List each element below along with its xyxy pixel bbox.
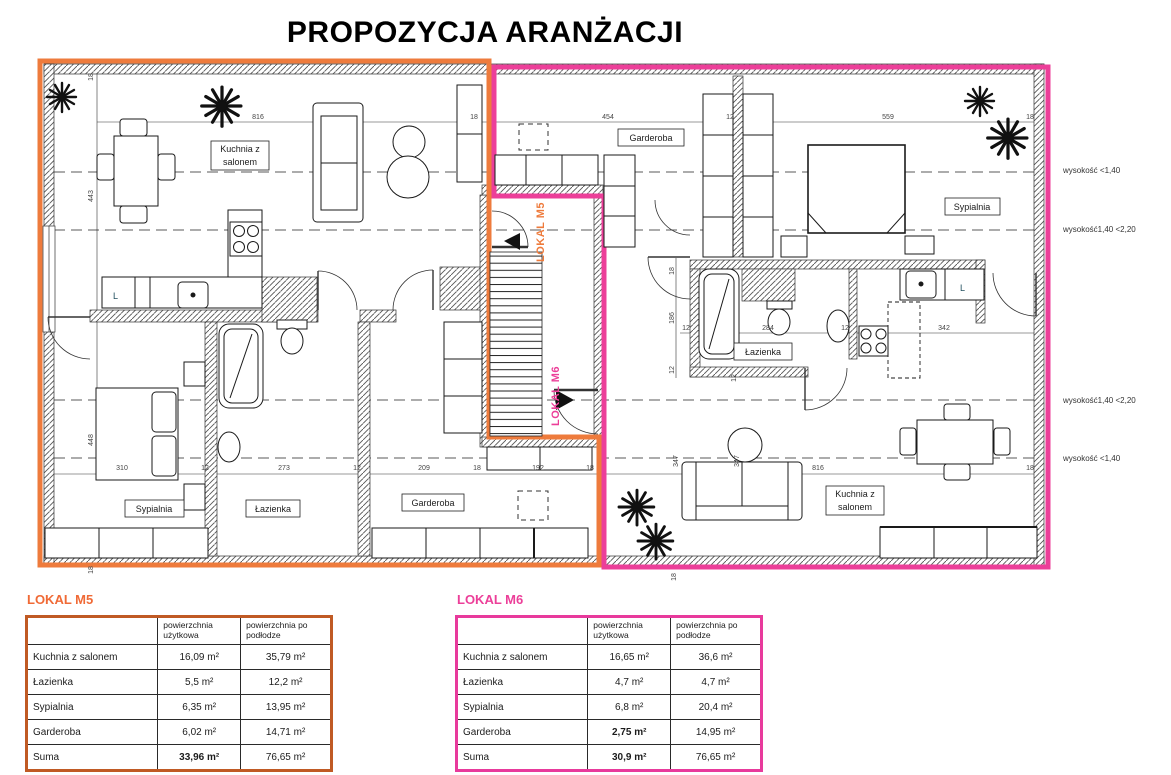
dim-text: 18 (586, 465, 594, 472)
label-kuchnia-m5: Kuchnia z salonem (211, 141, 269, 170)
header-empty (27, 617, 158, 645)
row-area-b: 14,71 m² (241, 720, 332, 745)
table-row: Garderoba 2,75 m² 14,95 m² (457, 720, 762, 745)
table-row: Sypialnia 6,35 m² 13,95 m² (27, 695, 332, 720)
row-name: Łazienka (27, 670, 158, 695)
dining-table-m5 (97, 119, 175, 223)
table-header-row: powierzchnia użytkowa powierzchnia po po… (27, 617, 332, 645)
dim-text: 12 (201, 465, 209, 472)
table-row: Łazienka 5,5 m² 12,2 m² (27, 670, 332, 695)
row-name: Garderoba (27, 720, 158, 745)
row-name: Garderoba (457, 720, 588, 745)
row-area-b: 4,7 m² (671, 670, 762, 695)
dim-text: 347 (673, 455, 680, 467)
dim-text: 347 (734, 455, 741, 467)
worktop-dashed-m6 (888, 302, 920, 378)
dim-text: 18 (470, 114, 478, 121)
sofa-m6 (682, 462, 802, 520)
dim-text: 12 (726, 114, 734, 121)
row-area-b: 36,6 m² (671, 645, 762, 670)
row-area-b: 13,95 m² (241, 695, 332, 720)
wardrobe-m6-b (743, 94, 773, 257)
cabinet-m6-top (495, 155, 598, 185)
height-label: wysokość1,40 <2,20 (1062, 396, 1136, 405)
low-cabinet-m5-left (45, 528, 208, 558)
area-table-m6: powierzchnia użytkowa powierzchnia po po… (455, 615, 763, 772)
stove-m6 (859, 326, 888, 356)
kitchen-counter-m6 (900, 269, 984, 300)
dim-text: 342 (938, 325, 950, 332)
header-col-b: powierzchnia po podłodze (671, 617, 762, 645)
nightstand (184, 484, 205, 510)
low-cabinet-m6 (880, 527, 1037, 558)
label-text: Kuchnia z (220, 144, 260, 154)
lokal-m6-label: LOKAL M6 (550, 366, 562, 426)
fridge-label-m6: L (960, 283, 965, 293)
label-lazienka-m5: Łazienka (246, 500, 300, 517)
dim-text: 18 (88, 73, 95, 81)
table-header-row: powierzchnia użytkowa powierzchnia po po… (457, 617, 762, 645)
dim-text: 443 (88, 190, 95, 202)
dim-text: 12 (669, 366, 676, 374)
row-name: Suma (27, 745, 158, 771)
nightstand (905, 236, 934, 254)
table-block-m6: LOKAL M6 powierzchnia użytkowa powierzch… (455, 592, 763, 772)
wardrobe-column-m5 (444, 322, 482, 433)
floor-plan: Kuchnia z salonem Garderoba Sypialnia Ła… (0, 0, 1171, 585)
table-row: Kuchnia z salonem 16,65 m² 36,6 m² (457, 645, 762, 670)
dim-text: 273 (278, 465, 290, 472)
label-text: Kuchnia z (835, 489, 875, 499)
label-text: Garderoba (629, 133, 672, 143)
label-garderoba-m5: Garderoba (402, 494, 464, 511)
dresser-m6 (604, 155, 635, 247)
stove-m5 (228, 210, 262, 277)
dim-text: 18 (88, 566, 95, 574)
table-row: Sypialnia 6,8 m² 20,4 m² (457, 695, 762, 720)
table-block-m5: LOKAL M5 powierzchnia użytkowa powierzch… (25, 592, 333, 772)
tree-icon (202, 87, 241, 126)
table-title-m6: LOKAL M6 (457, 592, 763, 607)
table-row: Łazienka 4,7 m² 4,7 m² (457, 670, 762, 695)
row-area-a: 6,8 m² (588, 695, 671, 720)
row-name: Sypialnia (457, 695, 588, 720)
header-col-a: powierzchnia użytkowa (158, 617, 241, 645)
tree-icon (619, 490, 654, 525)
dim-text: 310 (116, 465, 128, 472)
dim-text: 18 (1026, 465, 1034, 472)
dim-text: 192 (532, 465, 544, 472)
label-text: Łazienka (745, 347, 781, 357)
dim-text: 454 (602, 114, 614, 121)
row-area-a: 2,75 m² (588, 720, 671, 745)
table-row-suma: Suma 33,96 m² 76,65 m² (27, 745, 332, 771)
row-area-b: 76,65 m² (671, 745, 762, 771)
kitchen-counter-m5 (102, 277, 262, 308)
dim-text: 12 (353, 465, 361, 472)
tree-icon (638, 524, 673, 559)
dim-text: 12 (731, 374, 738, 382)
bathtub-m6 (699, 269, 739, 359)
dim-text: 18 (669, 267, 676, 275)
height-label: wysokość1,40 <2,20 (1062, 225, 1136, 234)
dim-text: 12 (841, 325, 849, 332)
dim-text: 18 (473, 465, 481, 472)
row-area-a: 6,02 m² (158, 720, 241, 745)
height-label: wysokość <1,40 (1062, 166, 1121, 175)
label-text: salonem (838, 502, 872, 512)
nightstand (781, 236, 807, 257)
height-labels: wysokość <1,40 wysokość1,40 <2,20 wysoko… (1062, 166, 1136, 463)
bathtub-m5 (219, 324, 263, 408)
label-text: Sypialnia (136, 504, 173, 514)
label-sypialnia-m6: Sypialnia (945, 198, 1000, 215)
tree-icon (965, 87, 994, 116)
table-row-suma: Suma 30,9 m² 76,65 m² (457, 745, 762, 771)
table-row: Garderoba 6,02 m² 14,71 m² (27, 720, 332, 745)
bed-m5 (96, 362, 205, 510)
row-area-a: 4,7 m² (588, 670, 671, 695)
row-name: Sypialnia (27, 695, 158, 720)
row-name: Kuchnia z salonem (27, 645, 158, 670)
window (43, 226, 55, 332)
label-sypialnia-m5: Sypialnia (125, 500, 184, 517)
row-name: Łazienka (457, 670, 588, 695)
row-area-a: 16,09 m² (158, 645, 241, 670)
sofa-m5 (313, 103, 363, 222)
row-area-b: 35,79 m² (241, 645, 332, 670)
dim-text: 12 (682, 325, 690, 332)
height-label: wysokość <1,40 (1062, 454, 1121, 463)
low-cabinet-m5-right (372, 528, 588, 558)
washbasin-m5 (218, 432, 240, 462)
row-name: Suma (457, 745, 588, 771)
label-text: salonem (223, 157, 257, 167)
row-area-a: 5,5 m² (158, 670, 241, 695)
row-area-a: 16,65 m² (588, 645, 671, 670)
table-row: Kuchnia z salonem 16,09 m² 35,79 m² (27, 645, 332, 670)
dim-text: 18 (1026, 114, 1034, 121)
row-area-b: 14,95 m² (671, 720, 762, 745)
header-col-a: powierzchnia użytkowa (588, 617, 671, 645)
label-kuchnia-m6: Kuchnia z salonem (826, 486, 884, 515)
header-col-b: powierzchnia po podłodze (241, 617, 332, 645)
row-area-a: 30,9 m² (588, 745, 671, 771)
label-garderoba-m6: Garderoba (618, 129, 684, 146)
bed-m6 (781, 145, 934, 257)
label-lazienka-m6: Łazienka (734, 343, 792, 360)
lokal-m5-label: LOKAL M5 (535, 202, 547, 262)
dim-text: 816 (812, 465, 824, 472)
fridge-label-m5: L (113, 291, 118, 301)
row-area-b: 76,65 m² (241, 745, 332, 771)
dining-table-m6 (900, 404, 1010, 480)
row-area-a: 6,35 m² (158, 695, 241, 720)
table-title-m5: LOKAL M5 (27, 592, 333, 607)
dim-text: 209 (418, 465, 430, 472)
dim-text: 448 (88, 434, 95, 446)
armchair-m5 (387, 126, 429, 198)
staircase (490, 252, 542, 436)
row-area-a: 33,96 m² (158, 745, 241, 771)
header-empty (457, 617, 588, 645)
dim-text: 559 (882, 114, 894, 121)
row-name: Kuchnia z salonem (457, 645, 588, 670)
row-area-b: 20,4 m² (671, 695, 762, 720)
dim-text: 18 (671, 573, 678, 581)
wardrobe-tall-m5 (457, 85, 482, 182)
nightstand (184, 362, 205, 386)
dim-text: 284 (762, 325, 774, 332)
dim-text: 186 (669, 312, 676, 324)
tree-icon (988, 119, 1027, 158)
dim-text: 816 (252, 114, 264, 121)
label-text: Garderoba (411, 498, 454, 508)
label-text: Sypialnia (954, 202, 991, 212)
toilet-m5 (277, 320, 307, 354)
area-table-m5: powierzchnia użytkowa powierzchnia po po… (25, 615, 333, 772)
label-text: Łazienka (255, 504, 291, 514)
row-area-b: 12,2 m² (241, 670, 332, 695)
